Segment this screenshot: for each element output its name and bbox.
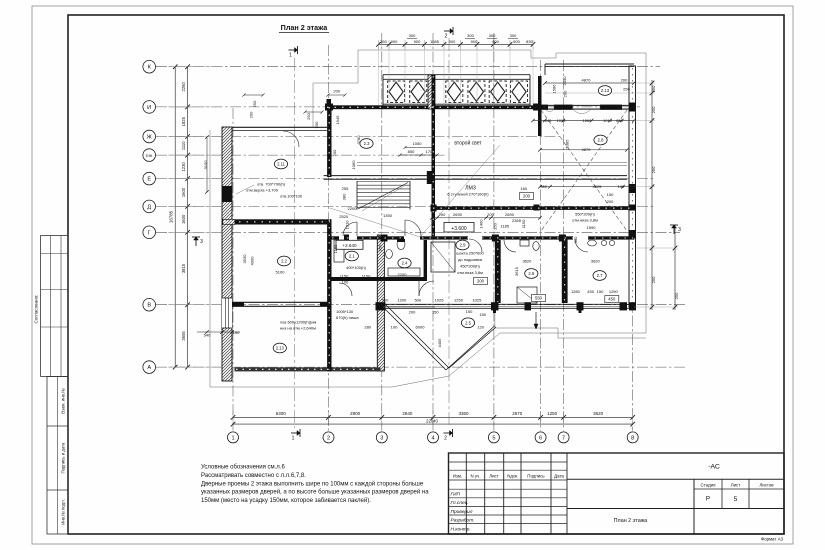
svg-text:План 2 этажа: План 2 этажа bbox=[614, 518, 648, 524]
svg-text:3620: 3620 bbox=[522, 259, 532, 264]
svg-text:шахта 250*600: шахта 250*600 bbox=[456, 251, 484, 256]
svg-text:195: 195 bbox=[618, 184, 625, 189]
svg-text:Взам. инв.№: Взам. инв.№ bbox=[60, 388, 65, 414]
svg-text:540: 540 bbox=[204, 333, 211, 338]
svg-text:150: 150 bbox=[432, 310, 439, 315]
svg-text:120: 120 bbox=[477, 325, 484, 330]
svg-text:1600: 1600 bbox=[181, 187, 186, 197]
svg-text:450: 450 bbox=[587, 289, 594, 294]
svg-text:+3.600: +3.600 bbox=[451, 226, 467, 232]
svg-text:150: 150 bbox=[479, 312, 486, 317]
svg-text:900: 900 bbox=[414, 39, 421, 44]
svg-text:670(h) ниша: 670(h) ниша bbox=[336, 315, 359, 320]
svg-text:350: 350 bbox=[380, 39, 387, 44]
svg-text:500: 500 bbox=[382, 298, 389, 303]
svg-text:Инв.№ подл.: Инв.№ подл. bbox=[60, 499, 65, 525]
svg-text:200: 200 bbox=[314, 121, 319, 128]
svg-text:200: 200 bbox=[621, 78, 628, 83]
svg-text:Формат А3: Формат А3 bbox=[761, 537, 784, 542]
svg-text:160: 160 bbox=[520, 186, 527, 191]
svg-text:2.7: 2.7 bbox=[597, 273, 603, 278]
svg-text:3815: 3815 bbox=[181, 263, 186, 273]
svg-text:2200: 2200 bbox=[348, 206, 358, 211]
svg-text:3615: 3615 bbox=[514, 266, 519, 276]
svg-text:2040: 2040 bbox=[562, 76, 567, 86]
svg-text:150: 150 bbox=[466, 309, 473, 314]
svg-text:2.5: 2.5 bbox=[465, 320, 471, 325]
svg-text:850: 850 bbox=[408, 149, 415, 154]
svg-text:2.9: 2.9 bbox=[460, 243, 466, 248]
svg-text:650: 650 bbox=[616, 118, 623, 123]
svg-text:2.2: 2.2 bbox=[281, 259, 287, 264]
svg-text:Условные обозначения см.л.6: Условные обозначения см.л.6 bbox=[201, 465, 285, 471]
svg-text:Подпись: Подпись bbox=[527, 474, 545, 479]
svg-text:6: 6 bbox=[539, 435, 542, 441]
svg-text:1945: 1945 bbox=[335, 115, 340, 125]
svg-text:лаз 600х1200(h)(им: лаз 600х1200(h)(им bbox=[280, 320, 316, 325]
svg-text:500: 500 bbox=[414, 298, 421, 303]
svg-text:400*100(h): 400*100(h) bbox=[346, 265, 366, 270]
svg-text:1590: 1590 bbox=[587, 225, 597, 230]
svg-text:450*200(h): 450*200(h) bbox=[460, 264, 480, 269]
svg-text:2840: 2840 bbox=[402, 411, 413, 416]
svg-text:1085: 1085 bbox=[430, 39, 440, 44]
svg-text:250: 250 bbox=[674, 292, 679, 299]
svg-text:7: 7 bbox=[562, 435, 565, 441]
svg-text:2.8: 2.8 bbox=[598, 138, 604, 143]
svg-text:1150: 1150 bbox=[521, 219, 526, 228]
svg-text:План 2 этажа: План 2 этажа bbox=[281, 23, 329, 32]
svg-text:Проверил: Проверил bbox=[451, 509, 473, 515]
svg-text:3: 3 bbox=[200, 239, 203, 245]
svg-text:250: 250 bbox=[623, 87, 630, 92]
svg-text:Лист: Лист bbox=[489, 474, 499, 479]
svg-text:6 ступеней 270*160(h): 6 ступеней 270*160(h) bbox=[447, 192, 489, 197]
svg-text:ГИП: ГИП bbox=[451, 492, 461, 498]
svg-text:100: 100 bbox=[342, 280, 349, 285]
svg-text:300: 300 bbox=[489, 33, 496, 38]
svg-text:2900: 2900 bbox=[350, 411, 361, 416]
svg-text:Изм.: Изм. bbox=[453, 474, 462, 479]
svg-text:+2.640: +2.640 bbox=[342, 243, 357, 248]
svg-text:Е: Е bbox=[147, 177, 151, 183]
svg-text:450: 450 bbox=[608, 297, 616, 302]
svg-text:2.13: 2.13 bbox=[601, 88, 610, 93]
svg-text:550: 550 bbox=[540, 184, 547, 189]
svg-text:550: 550 bbox=[535, 296, 543, 301]
svg-text:300: 300 bbox=[573, 236, 578, 243]
svg-text:3620: 3620 bbox=[591, 259, 601, 264]
svg-text:250: 250 bbox=[651, 106, 656, 113]
svg-text:1060: 1060 bbox=[351, 160, 356, 170]
svg-text:1400: 1400 bbox=[478, 219, 483, 229]
svg-text:3780: 3780 bbox=[356, 135, 361, 145]
svg-text:4870: 4870 bbox=[582, 147, 592, 152]
svg-text:Nдок: Nдок bbox=[507, 474, 517, 479]
svg-text:Стадия: Стадия bbox=[701, 483, 717, 488]
svg-text:3: 3 bbox=[678, 227, 681, 233]
svg-text:4: 4 bbox=[431, 435, 434, 441]
svg-text:1025: 1025 bbox=[435, 298, 445, 303]
svg-text:900: 900 bbox=[492, 39, 499, 44]
svg-text:250: 250 bbox=[306, 112, 311, 119]
svg-text:Листов: Листов bbox=[759, 483, 774, 488]
svg-text:1150: 1150 bbox=[340, 274, 349, 279]
svg-text:200: 200 bbox=[523, 194, 531, 199]
svg-text:2.3: 2.3 bbox=[364, 141, 370, 146]
svg-text:150: 150 bbox=[597, 289, 604, 294]
svg-text:2690: 2690 bbox=[453, 212, 463, 217]
svg-text:2.6: 2.6 bbox=[528, 271, 534, 276]
svg-text:250: 250 bbox=[651, 276, 656, 283]
svg-text:1005*130: 1005*130 bbox=[336, 309, 354, 314]
svg-text:900: 900 bbox=[391, 39, 398, 44]
svg-text:1: 1 bbox=[289, 53, 292, 59]
svg-text:1: 1 bbox=[292, 436, 295, 442]
svg-text:4405: 4405 bbox=[437, 338, 442, 348]
svg-text:900: 900 bbox=[513, 39, 520, 44]
svg-text:3: 3 bbox=[380, 435, 383, 441]
svg-text:4525: 4525 bbox=[593, 184, 603, 189]
svg-text:250: 250 bbox=[651, 85, 656, 92]
svg-text:отм.верха +3,700: отм.верха +3,700 bbox=[246, 188, 279, 193]
svg-text:Согласовано:: Согласовано: bbox=[34, 295, 39, 324]
svg-text:950: 950 bbox=[378, 244, 383, 251]
svg-text:200: 200 bbox=[409, 310, 416, 315]
svg-text:22040: 22040 bbox=[426, 418, 438, 423]
svg-text:2: 2 bbox=[327, 435, 330, 441]
svg-text:1150: 1150 bbox=[333, 244, 338, 253]
svg-text:1350: 1350 bbox=[383, 213, 393, 218]
svg-text:Гл.спец.: Гл.спец. bbox=[451, 500, 469, 506]
svg-text:Г: Г bbox=[148, 230, 151, 236]
svg-text:N уч.: N уч. bbox=[470, 474, 480, 479]
svg-text:И: И bbox=[147, 105, 151, 111]
svg-text:Разработ.: Разработ. bbox=[451, 517, 475, 523]
svg-text:100: 100 bbox=[391, 325, 398, 330]
svg-text:-АС: -АС bbox=[708, 464, 720, 471]
svg-text:1025: 1025 bbox=[472, 298, 482, 303]
svg-text:1560: 1560 bbox=[583, 118, 593, 123]
svg-text:1150: 1150 bbox=[362, 274, 371, 279]
svg-text:255: 255 bbox=[342, 186, 349, 191]
svg-text:3100: 3100 bbox=[203, 160, 208, 170]
svg-text:150: 150 bbox=[493, 222, 498, 229]
svg-text:2250: 2250 bbox=[181, 81, 186, 91]
svg-text:16785: 16785 bbox=[169, 210, 174, 223]
svg-text:1250: 1250 bbox=[454, 298, 464, 303]
svg-text:до подшивки: до подшивки bbox=[458, 257, 482, 262]
svg-text:830: 830 bbox=[526, 39, 533, 44]
svg-text:280: 280 bbox=[364, 325, 371, 330]
svg-text:1290: 1290 bbox=[609, 289, 619, 294]
svg-text:1825: 1825 bbox=[181, 116, 186, 126]
svg-text:отв. 700*700(h): отв. 700*700(h) bbox=[257, 182, 286, 187]
svg-text:Лист: Лист bbox=[731, 483, 741, 488]
svg-text:1310: 1310 bbox=[345, 220, 350, 230]
svg-text:отм.низа 3,8м: отм.низа 3,8м bbox=[457, 270, 483, 275]
svg-text:3360: 3360 bbox=[458, 411, 469, 416]
svg-text:Р: Р bbox=[706, 496, 710, 503]
svg-text:отв.100*100: отв.100*100 bbox=[280, 194, 303, 199]
svg-text:1230: 1230 bbox=[181, 162, 186, 172]
svg-text:100: 100 bbox=[233, 330, 240, 335]
svg-text:2.4: 2.4 bbox=[402, 261, 408, 266]
svg-text:3620: 3620 bbox=[593, 411, 604, 416]
svg-text:1600: 1600 bbox=[181, 214, 186, 224]
svg-text:250: 250 bbox=[252, 100, 257, 107]
svg-text:2.13: 2.13 bbox=[276, 346, 285, 351]
svg-text:4870: 4870 bbox=[582, 78, 592, 83]
svg-text:2570: 2570 bbox=[512, 411, 523, 416]
svg-text:Н.контр.: Н.контр. bbox=[451, 527, 471, 533]
svg-text:6000: 6000 bbox=[416, 325, 426, 330]
svg-text:200: 200 bbox=[487, 212, 494, 217]
svg-text:150мм (место на усадку 150мм,: 150мм (место на усадку 150мм, которое за… bbox=[201, 497, 371, 504]
svg-text:В: В bbox=[147, 303, 151, 309]
svg-text:200: 200 bbox=[477, 279, 485, 284]
svg-text:Ж: Ж bbox=[147, 135, 153, 141]
svg-text:170: 170 bbox=[426, 149, 433, 154]
svg-text:Подпись и дата: Подпись и дата bbox=[60, 442, 65, 474]
svg-text:Дата: Дата bbox=[554, 474, 564, 479]
svg-text:5100: 5100 bbox=[276, 270, 286, 275]
svg-text:8: 8 bbox=[631, 435, 634, 441]
svg-text:1586: 1586 bbox=[551, 84, 556, 94]
svg-text:1200: 1200 bbox=[397, 298, 407, 303]
svg-text:380: 380 bbox=[342, 193, 347, 200]
svg-text:1: 1 bbox=[231, 435, 234, 441]
svg-text:2200: 2200 bbox=[398, 272, 408, 277]
svg-text:2: 2 bbox=[444, 436, 447, 442]
svg-text:2.1: 2.1 bbox=[349, 254, 355, 259]
svg-text:Д: Д bbox=[147, 204, 151, 210]
svg-text:250: 250 bbox=[651, 166, 656, 173]
svg-text:300: 300 bbox=[467, 33, 474, 38]
svg-text:2520: 2520 bbox=[339, 214, 349, 219]
svg-text:низ на отм.+2,640м: низ на отм.+2,640м bbox=[280, 326, 316, 331]
svg-text:200: 200 bbox=[333, 89, 340, 94]
svg-text:3655: 3655 bbox=[181, 331, 186, 341]
svg-text:200: 200 bbox=[332, 149, 337, 156]
svg-text:1185: 1185 bbox=[500, 224, 509, 229]
svg-text:2.11: 2.11 bbox=[277, 162, 286, 167]
svg-text:1010: 1010 bbox=[603, 118, 613, 123]
svg-text:Рассматривать совместно с л.л.: Рассматривать совместно с л.л.6,7,8. bbox=[201, 473, 306, 479]
svg-text:300: 300 bbox=[510, 33, 517, 38]
svg-text:3530: 3530 bbox=[242, 254, 247, 264]
svg-text:5385: 5385 bbox=[565, 139, 570, 149]
svg-text:200: 200 bbox=[562, 90, 567, 97]
svg-text:5: 5 bbox=[492, 435, 495, 441]
svg-text:ЕЖ: ЕЖ bbox=[146, 153, 153, 158]
svg-text:200: 200 bbox=[607, 199, 614, 204]
svg-text:1280: 1280 bbox=[571, 289, 581, 294]
svg-text:отм.низа 3,8м: отм.низа 3,8м bbox=[572, 218, 598, 223]
svg-text:1015: 1015 bbox=[557, 118, 567, 123]
svg-text:А: А bbox=[147, 365, 151, 371]
svg-text:900: 900 bbox=[449, 39, 456, 44]
svg-text:2: 2 bbox=[445, 34, 448, 40]
svg-text:645: 645 bbox=[545, 118, 552, 123]
svg-text:6300: 6300 bbox=[276, 411, 287, 416]
svg-text:300: 300 bbox=[409, 33, 416, 38]
svg-text:второй свет: второй свет bbox=[454, 140, 482, 147]
svg-text:550*200(h): 550*200(h) bbox=[575, 212, 595, 217]
svg-text:1110: 1110 bbox=[181, 141, 186, 150]
svg-text:4000: 4000 bbox=[250, 256, 255, 266]
svg-text:указанных размеров дверей, а п: указанных размеров дверей, а по высоте б… bbox=[201, 489, 429, 496]
svg-text:1050: 1050 bbox=[413, 141, 423, 146]
svg-text:2690: 2690 bbox=[505, 212, 515, 217]
svg-text:200: 200 bbox=[439, 212, 446, 217]
svg-text:150: 150 bbox=[607, 192, 614, 197]
svg-text:200: 200 bbox=[249, 111, 254, 118]
svg-text:Дверные проемы 2 этажа выполн: Дверные проемы 2 этажа выполнить шире по… bbox=[201, 480, 424, 487]
svg-text:5: 5 bbox=[734, 496, 738, 503]
svg-text:1250: 1250 bbox=[547, 411, 558, 416]
svg-text:900: 900 bbox=[471, 39, 478, 44]
